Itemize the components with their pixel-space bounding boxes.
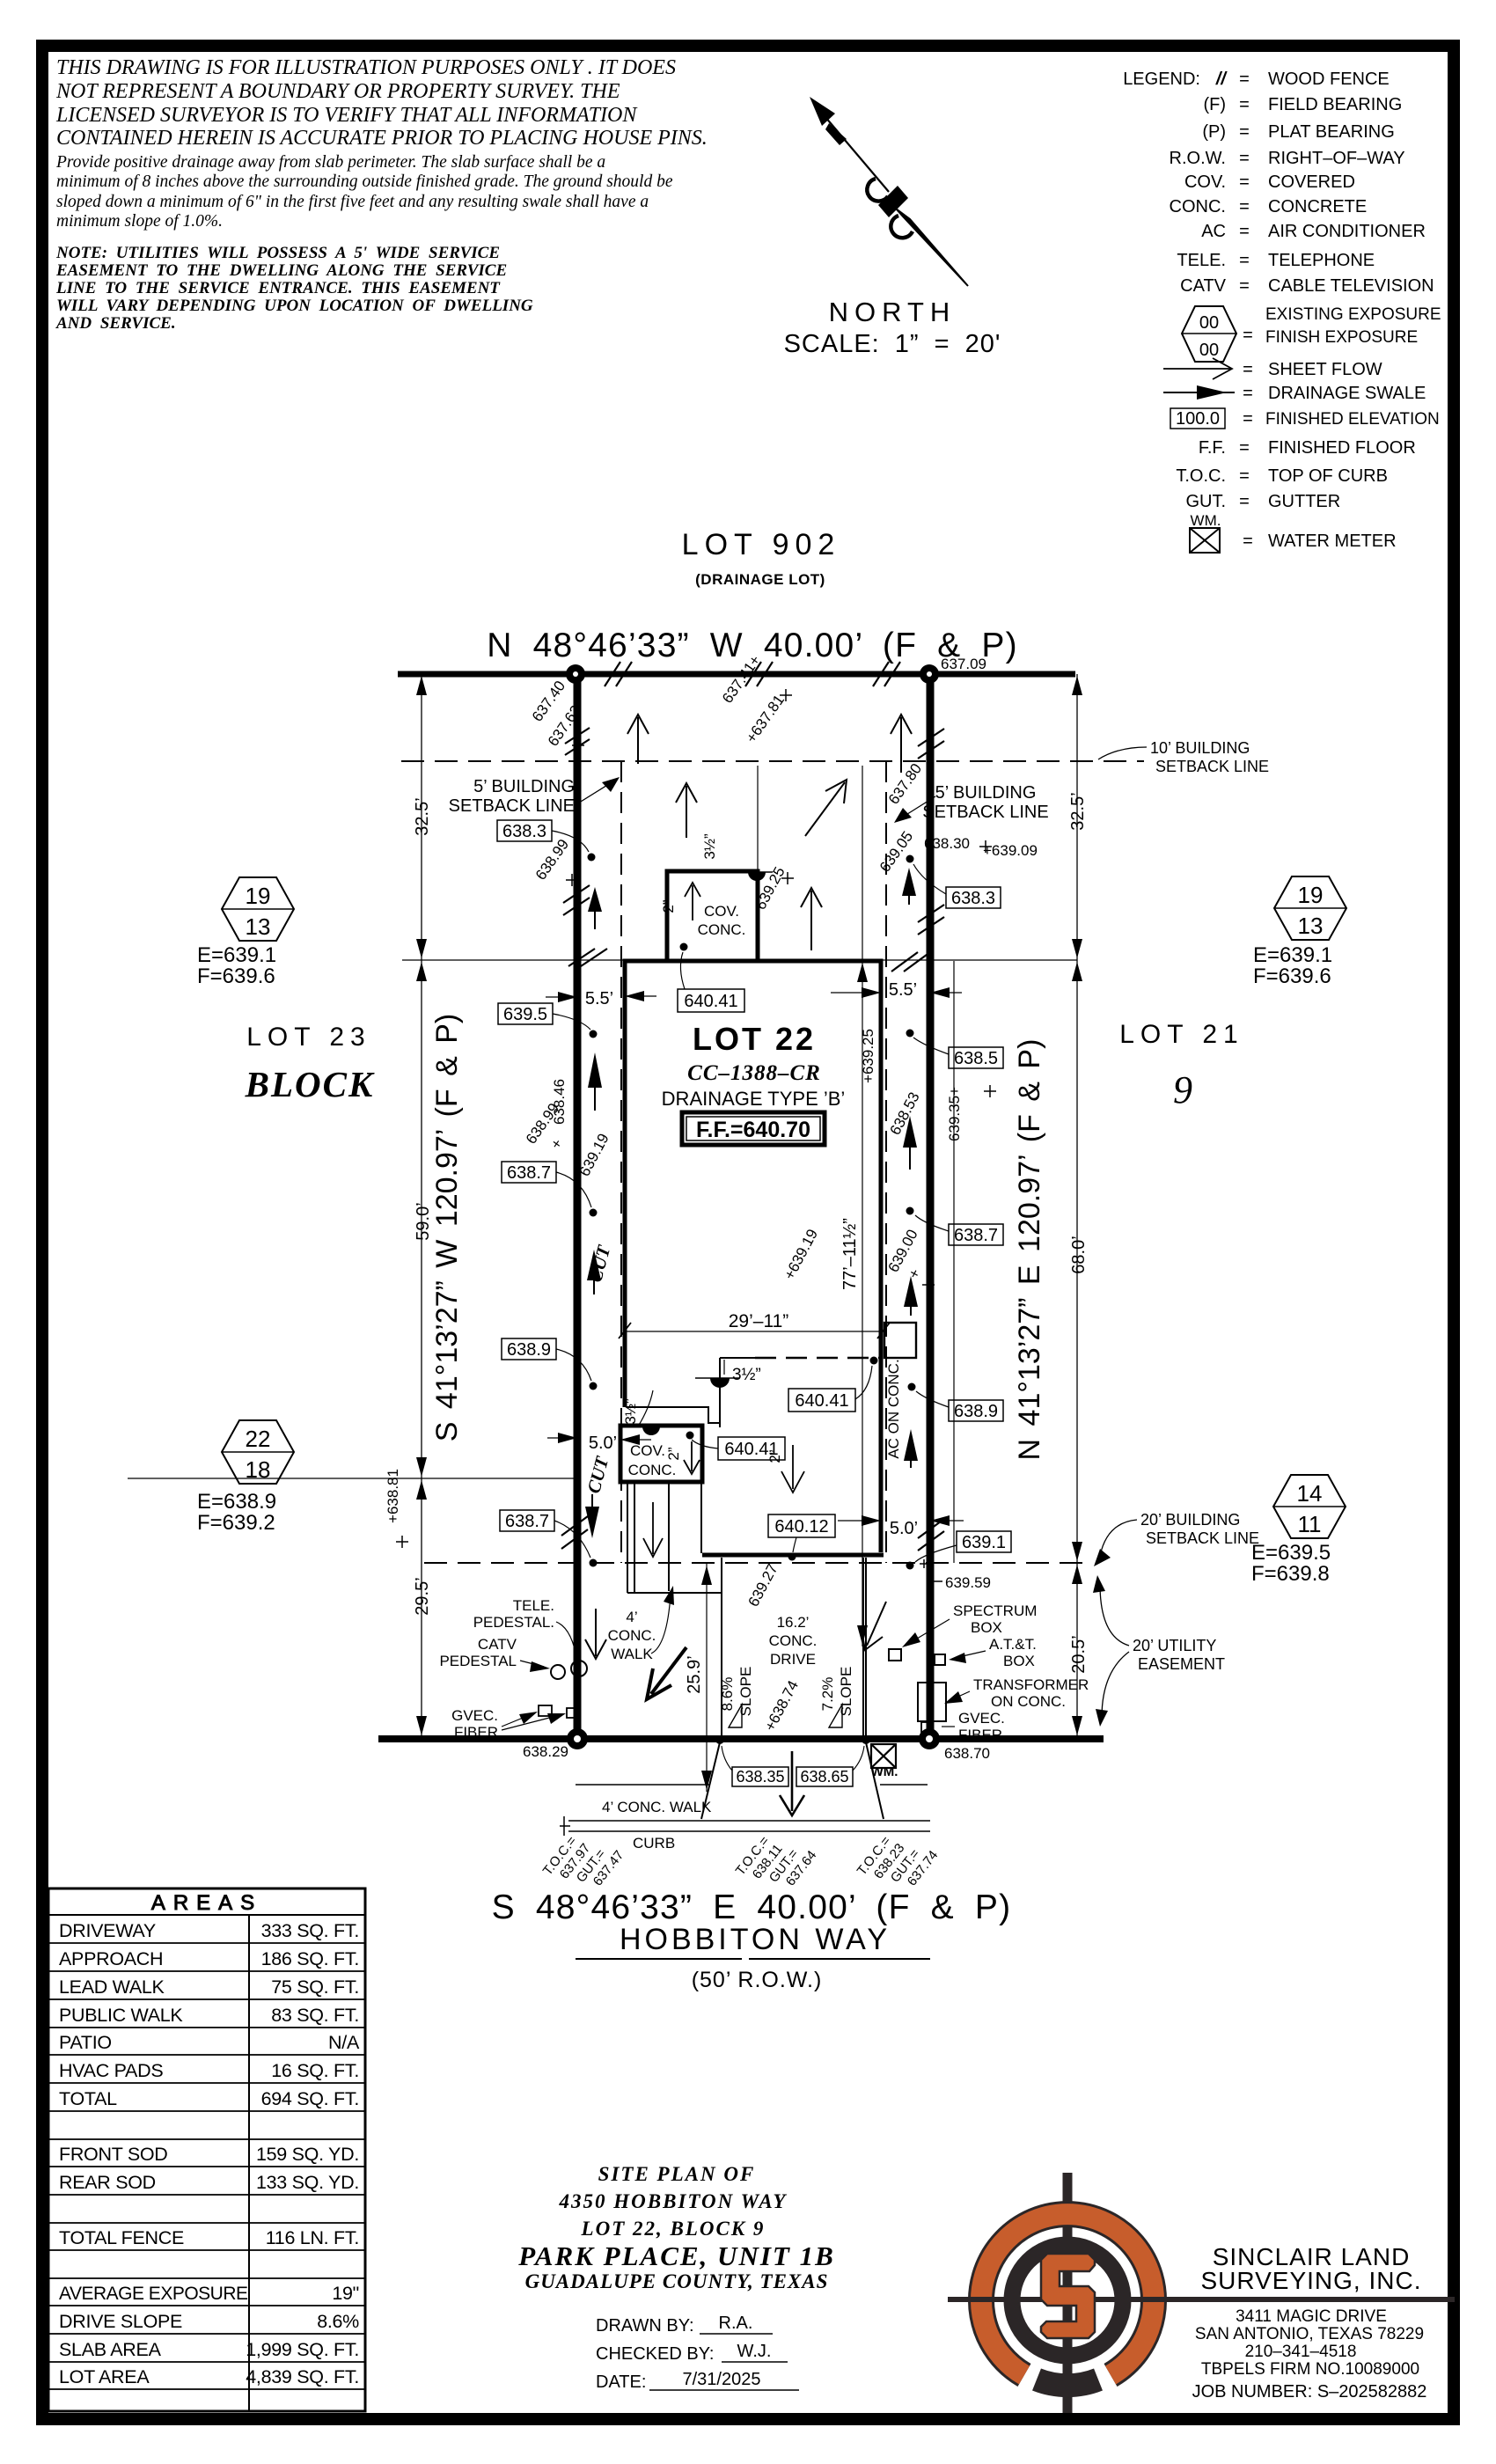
svg-text:25.9’: 25.9’ bbox=[685, 1655, 704, 1693]
svg-text:E=639.5: E=639.5 bbox=[1251, 1541, 1331, 1565]
svg-text:TELEPHONE: TELEPHONE bbox=[1268, 251, 1375, 270]
svg-text:DRAWN BY:: DRAWN BY: bbox=[596, 2316, 694, 2336]
svg-text:13: 13 bbox=[246, 913, 271, 940]
svg-text:5.5’: 5.5’ bbox=[585, 989, 613, 1008]
svg-text:PLAT BEARING: PLAT BEARING bbox=[1268, 122, 1395, 142]
svg-text:3411 MAGIC DRIVE: 3411 MAGIC DRIVE bbox=[1236, 2307, 1387, 2326]
svg-text:=: = bbox=[1239, 466, 1250, 486]
svg-text:E=639.1: E=639.1 bbox=[197, 943, 276, 967]
svg-text:LOT 22, BLOCK 9: LOT 22, BLOCK 9 bbox=[581, 2218, 766, 2240]
svg-text:HOBBITON WAY: HOBBITON WAY bbox=[620, 1923, 891, 1956]
svg-text:640.41: 640.41 bbox=[795, 1391, 848, 1411]
svg-text:638.7: 638.7 bbox=[954, 1226, 998, 1245]
svg-text:LOT AREA: LOT AREA bbox=[59, 2366, 150, 2387]
svg-text:638.3: 638.3 bbox=[951, 889, 995, 908]
svg-text:639.5: 639.5 bbox=[503, 1005, 547, 1024]
svg-text:SETBACK LINE: SETBACK LINE bbox=[1155, 758, 1269, 775]
svg-text:HVAC PADS: HVAC PADS bbox=[59, 2060, 163, 2081]
svg-text:S 48°46’33” E 40.00’ (F & P): S 48°46’33” E 40.00’ (F & P) bbox=[492, 1888, 1012, 1926]
svg-text:=: = bbox=[1239, 122, 1250, 142]
svg-text:+638.81: +638.81 bbox=[385, 1469, 401, 1523]
svg-text:639.1: 639.1 bbox=[962, 1533, 1006, 1552]
svg-text:CONTAINED HEREIN IS ACCURATE P: CONTAINED HEREIN IS ACCURATE PRIOR TO PL… bbox=[56, 127, 708, 150]
svg-text:2”: 2” bbox=[665, 1447, 682, 1460]
svg-text:AC: AC bbox=[1201, 222, 1226, 241]
svg-text:FRONT SOD: FRONT SOD bbox=[59, 2144, 168, 2165]
svg-text:638.70: 638.70 bbox=[944, 1745, 990, 1762]
svg-text:CC–1388–CR: CC–1388–CR bbox=[687, 1061, 821, 1085]
svg-text:DRIVEWAY: DRIVEWAY bbox=[59, 1920, 156, 1941]
svg-text:CATV: CATV bbox=[1180, 276, 1227, 296]
svg-text:DATE:: DATE: bbox=[596, 2372, 646, 2392]
svg-text:20.5’: 20.5’ bbox=[1069, 1635, 1089, 1673]
svg-text:7.2%: 7.2% bbox=[819, 1677, 836, 1712]
svg-text:GVEC.: GVEC. bbox=[958, 1710, 1005, 1727]
svg-text:CONC.: CONC. bbox=[1170, 197, 1226, 216]
svg-text:22: 22 bbox=[246, 1426, 271, 1452]
svg-text:=: = bbox=[1243, 326, 1253, 345]
svg-text:AC ON CONC.: AC ON CONC. bbox=[885, 1359, 902, 1458]
svg-text:638.46: 638.46 bbox=[551, 1079, 568, 1125]
svg-text:F=639.8: F=639.8 bbox=[1251, 1562, 1330, 1586]
svg-text:=: = bbox=[1239, 95, 1250, 114]
svg-text:WATER METER: WATER METER bbox=[1268, 532, 1397, 551]
svg-text:REAR SOD: REAR SOD bbox=[59, 2172, 156, 2193]
svg-text:PEDESTAL.: PEDESTAL. bbox=[473, 1614, 554, 1631]
svg-text:SLAB AREA: SLAB AREA bbox=[59, 2339, 162, 2360]
svg-text:=: = bbox=[1239, 197, 1250, 216]
svg-text:E=638.9: E=638.9 bbox=[197, 1490, 276, 1514]
svg-text:10’ BUILDING: 10’ BUILDING bbox=[1150, 739, 1250, 757]
svg-text:LOT 22: LOT 22 bbox=[693, 1021, 816, 1057]
svg-text:159 SQ. YD.: 159 SQ. YD. bbox=[256, 2144, 359, 2165]
svg-text:THIS DRAWING IS FOR ILLUSTRATI: THIS DRAWING IS FOR ILLUSTRATION PURPOSE… bbox=[56, 56, 676, 79]
svg-text:3½”: 3½” bbox=[701, 833, 718, 860]
svg-text:EASEMENT: EASEMENT bbox=[1138, 1655, 1225, 1673]
svg-text:=: = bbox=[1239, 172, 1250, 192]
svg-text:638.9: 638.9 bbox=[954, 1402, 998, 1421]
svg-text:4’ CONC. WALK: 4’ CONC. WALK bbox=[602, 1799, 712, 1815]
svg-text:638.30: 638.30 bbox=[924, 835, 970, 852]
svg-text:4350 HOBBITON WAY: 4350 HOBBITON WAY bbox=[559, 2190, 788, 2212]
svg-text:CURB: CURB bbox=[633, 1835, 675, 1852]
svg-text:COVERED: COVERED bbox=[1268, 172, 1355, 192]
svg-text:TOTAL: TOTAL bbox=[59, 2088, 117, 2109]
svg-text:SAN ANTONIO, TEXAS 78229: SAN ANTONIO, TEXAS 78229 bbox=[1195, 2325, 1424, 2343]
svg-text:N/A: N/A bbox=[328, 2032, 360, 2053]
svg-text:8.6%: 8.6% bbox=[719, 1677, 736, 1712]
svg-text:GUTTER: GUTTER bbox=[1268, 492, 1340, 511]
svg-text:3½”: 3½” bbox=[622, 1398, 639, 1425]
svg-text:TOP OF CURB: TOP OF CURB bbox=[1268, 466, 1388, 486]
svg-text:LICENSED SURVEYOR IS TO VERIFY: LICENSED SURVEYOR IS TO VERIFY THAT ALL … bbox=[55, 104, 638, 127]
svg-text:SPECTRUM: SPECTRUM bbox=[953, 1602, 1037, 1619]
svg-text:LEGEND:: LEGEND: bbox=[1123, 70, 1200, 89]
svg-text:WM.: WM. bbox=[1191, 512, 1221, 529]
svg-text:=: = bbox=[1243, 384, 1253, 403]
svg-text:sloped down a minimum of 6" in: sloped down a minimum of 6" in the first… bbox=[56, 193, 649, 211]
svg-text:AND SERVICE.: AND SERVICE. bbox=[55, 314, 176, 333]
svg-text:PEDESTAL: PEDESTAL bbox=[439, 1653, 517, 1669]
svg-text:16.2’: 16.2’ bbox=[777, 1614, 810, 1631]
svg-text:PARK PLACE, UNIT 1B: PARK PLACE, UNIT 1B bbox=[517, 2240, 835, 2271]
svg-text:COV.: COV. bbox=[704, 903, 739, 920]
svg-text:DRIVE SLOPE: DRIVE SLOPE bbox=[59, 2311, 182, 2332]
svg-text:640.41: 640.41 bbox=[684, 992, 737, 1011]
svg-text:TRANSFORMER: TRANSFORMER bbox=[973, 1676, 1089, 1693]
svg-text:APPROACH: APPROACH bbox=[59, 1948, 163, 1969]
svg-text:WILL VARY DEPENDING UPON LOCAT: WILL VARY DEPENDING UPON LOCATION OF DWE… bbox=[56, 297, 533, 315]
svg-text:11: 11 bbox=[1298, 1511, 1322, 1537]
svg-text:AVERAGE EXPOSURE: AVERAGE EXPOSURE bbox=[59, 2284, 248, 2304]
svg-text:638.35: 638.35 bbox=[736, 1768, 784, 1786]
svg-text:640.12: 640.12 bbox=[774, 1517, 828, 1536]
svg-text:DRIVE: DRIVE bbox=[770, 1651, 816, 1668]
svg-text:T.O.C.: T.O.C. bbox=[1176, 466, 1226, 486]
svg-text:(50’ R.O.W.): (50’ R.O.W.) bbox=[692, 1968, 823, 1992]
svg-text:4’: 4’ bbox=[626, 1609, 637, 1625]
svg-text:AREAS: AREAS bbox=[151, 1891, 262, 1915]
svg-text:GUT.: GUT. bbox=[1185, 492, 1226, 511]
svg-text:WM.: WM. bbox=[871, 1764, 898, 1779]
svg-text:CONCRETE: CONCRETE bbox=[1268, 197, 1367, 216]
svg-text:=: = bbox=[1243, 532, 1253, 551]
svg-text:7/31/2025: 7/31/2025 bbox=[683, 2370, 761, 2389]
svg-text:R.A.: R.A. bbox=[719, 2314, 753, 2333]
svg-text:133 SQ. YD.: 133 SQ. YD. bbox=[256, 2172, 359, 2193]
svg-text:00: 00 bbox=[1199, 341, 1219, 360]
svg-text:638.65: 638.65 bbox=[800, 1768, 848, 1786]
svg-text:19: 19 bbox=[1298, 882, 1324, 908]
svg-text:(DRAINAGE LOT): (DRAINAGE LOT) bbox=[695, 571, 825, 588]
svg-text:638.5: 638.5 bbox=[954, 1049, 998, 1068]
svg-text:F=639.6: F=639.6 bbox=[1253, 964, 1331, 988]
svg-text:116 LN. FT.: 116 LN. FT. bbox=[266, 2227, 359, 2248]
svg-text:4,839 SQ. FT.: 4,839 SQ. FT. bbox=[246, 2366, 359, 2387]
svg-text:=: = bbox=[1243, 409, 1253, 429]
svg-text:SURVEYING, INC.: SURVEYING, INC. bbox=[1201, 2267, 1422, 2294]
svg-text:CABLE TELEVISION: CABLE TELEVISION bbox=[1268, 276, 1434, 296]
svg-text:W.J.: W.J. bbox=[737, 2342, 772, 2361]
svg-text:COV.: COV. bbox=[1184, 172, 1226, 192]
svg-text:2”: 2” bbox=[766, 1449, 783, 1463]
svg-text:638.29: 638.29 bbox=[523, 1743, 568, 1760]
svg-text:13: 13 bbox=[1298, 913, 1324, 939]
svg-text:639.59: 639.59 bbox=[945, 1574, 991, 1591]
svg-text:BOX: BOX bbox=[971, 1619, 1002, 1636]
svg-text:TELE.: TELE. bbox=[513, 1597, 554, 1614]
svg-text:TBPELS FIRM NO.10089000: TBPELS FIRM NO.10089000 bbox=[1201, 2360, 1419, 2379]
svg-text:E=639.1: E=639.1 bbox=[1253, 943, 1332, 967]
svg-text:CATV: CATV bbox=[478, 1636, 517, 1653]
svg-text:NOTE: UTILITIES WILL POSSESS A: NOTE: UTILITIES WILL POSSESS A 5' WIDE S… bbox=[55, 244, 500, 262]
svg-text:BLOCK: BLOCK bbox=[245, 1064, 375, 1104]
svg-text:FINISHED ELEVATION: FINISHED ELEVATION bbox=[1265, 410, 1440, 429]
svg-text:F=639.2: F=639.2 bbox=[197, 1511, 275, 1535]
svg-text:FIBER: FIBER bbox=[958, 1727, 1002, 1743]
svg-text:(P): (P) bbox=[1202, 122, 1226, 142]
svg-text:SETBACK LINE: SETBACK LINE bbox=[1146, 1529, 1259, 1547]
svg-text:29’–11”: 29’–11” bbox=[729, 1311, 789, 1331]
svg-text:COV.: COV. bbox=[630, 1442, 665, 1459]
svg-text:S 41°13’27” W 120.97’ (F & P): S 41°13’27” W 120.97’ (F & P) bbox=[430, 1014, 464, 1441]
svg-text:20’ BUILDING: 20’ BUILDING bbox=[1140, 1511, 1240, 1529]
svg-text:637.09: 637.09 bbox=[941, 656, 986, 672]
svg-text:LINE TO THE SERVICE ENTRANCE.: LINE TO THE SERVICE ENTRANCE. THIS EASEM… bbox=[55, 279, 501, 297]
svg-text:LOT 21: LOT 21 bbox=[1119, 1020, 1244, 1049]
svg-text:BOX: BOX bbox=[1003, 1653, 1035, 1669]
svg-text:68.0’: 68.0’ bbox=[1069, 1236, 1089, 1273]
svg-text:5.0’: 5.0’ bbox=[890, 1519, 918, 1538]
svg-text:CONC.: CONC. bbox=[628, 1462, 677, 1478]
svg-text:638.3: 638.3 bbox=[502, 822, 546, 841]
svg-text:=: = bbox=[1239, 251, 1250, 270]
svg-text:FIBER: FIBER bbox=[454, 1724, 498, 1741]
svg-text:F.F.=640.70: F.F.=640.70 bbox=[696, 1118, 810, 1142]
svg-text:minimum slope of 1.0%.: minimum slope of 1.0%. bbox=[56, 212, 223, 231]
svg-text:2”: 2” bbox=[660, 899, 677, 913]
svg-text:18: 18 bbox=[246, 1456, 271, 1483]
svg-text:CONC.: CONC. bbox=[608, 1627, 656, 1644]
svg-text:GVEC.: GVEC. bbox=[451, 1707, 498, 1724]
svg-text:=: = bbox=[1243, 360, 1253, 379]
svg-text:EASEMENT TO THE DWELLING ALONG: EASEMENT TO THE DWELLING ALONG THE SERVI… bbox=[55, 261, 507, 280]
svg-text:29.5’: 29.5’ bbox=[413, 1577, 432, 1615]
svg-text:00: 00 bbox=[1199, 313, 1219, 333]
svg-text:TOTAL FENCE: TOTAL FENCE bbox=[59, 2227, 184, 2248]
svg-text:DRAINAGE TYPE ’B’: DRAINAGE TYPE ’B’ bbox=[662, 1088, 846, 1110]
svg-text:JOB NUMBER: S–202582882: JOB NUMBER: S–202582882 bbox=[1192, 2382, 1427, 2402]
svg-text:A.T.&T.: A.T.&T. bbox=[989, 1636, 1037, 1653]
svg-text:LOT 23: LOT 23 bbox=[246, 1023, 371, 1052]
svg-text:PATIO: PATIO bbox=[59, 2032, 112, 2053]
svg-text:FINISH EXPOSURE: FINISH EXPOSURE bbox=[1265, 328, 1418, 347]
svg-text:AIR CONDITIONER: AIR CONDITIONER bbox=[1268, 222, 1426, 241]
svg-text:5’ BUILDING: 5’ BUILDING bbox=[473, 777, 575, 796]
svg-text:=: = bbox=[1239, 276, 1250, 296]
svg-text:638.7: 638.7 bbox=[505, 1512, 549, 1531]
svg-text:R.O.W.: R.O.W. bbox=[1170, 149, 1226, 168]
svg-text:20’ UTILITY: 20’ UTILITY bbox=[1133, 1637, 1216, 1654]
svg-text:CHECKED BY:: CHECKED BY: bbox=[596, 2344, 714, 2364]
svg-text:638.9: 638.9 bbox=[507, 1340, 551, 1360]
svg-text:(F): (F) bbox=[1203, 95, 1226, 114]
svg-text:=: = bbox=[1239, 70, 1250, 89]
svg-text:+639.09: +639.09 bbox=[983, 842, 1038, 859]
svg-text:NOT REPRESENT A BOUNDARY OR PR: NOT REPRESENT A BOUNDARY OR PROPERTY SUR… bbox=[55, 80, 620, 103]
svg-text:SETBACK LINE: SETBACK LINE bbox=[449, 796, 575, 816]
svg-text:LEAD WALK: LEAD WALK bbox=[59, 1976, 165, 1998]
svg-text:=: = bbox=[1239, 222, 1250, 241]
svg-text:ON CONC.: ON CONC. bbox=[991, 1693, 1066, 1710]
svg-text:N 41°13’27” E 120.97’ (F & P): N 41°13’27” E 120.97’ (F & P) bbox=[1013, 1039, 1046, 1461]
svg-text:Provide positive drainage away: Provide positive drainage away from slab… bbox=[55, 153, 605, 172]
svg-text:100.0: 100.0 bbox=[1176, 409, 1220, 429]
svg-text:TELE.: TELE. bbox=[1177, 251, 1226, 270]
svg-text:=: = bbox=[1239, 149, 1250, 168]
svg-text:638.7: 638.7 bbox=[507, 1163, 551, 1183]
svg-text:SITE PLAN OF: SITE PLAN OF bbox=[598, 2163, 756, 2185]
svg-text:75 SQ. FT.: 75 SQ. FT. bbox=[271, 1976, 359, 1998]
svg-text:=: = bbox=[1239, 438, 1250, 458]
svg-text:19": 19" bbox=[332, 2283, 359, 2304]
svg-text:SCALE: 1” = 20': SCALE: 1” = 20' bbox=[784, 330, 1001, 358]
svg-text:=: = bbox=[1239, 492, 1250, 511]
svg-text:210–341–4518: 210–341–4518 bbox=[1245, 2343, 1357, 2361]
svg-text:9: 9 bbox=[1173, 1068, 1192, 1111]
svg-text:5.5’: 5.5’ bbox=[889, 980, 917, 1000]
svg-text:186 SQ. FT.: 186 SQ. FT. bbox=[261, 1948, 359, 1969]
svg-text:F.F.: F.F. bbox=[1199, 438, 1226, 458]
svg-text:FINISHED FLOOR: FINISHED FLOOR bbox=[1268, 438, 1416, 458]
svg-text:SHEET FLOW: SHEET FLOW bbox=[1268, 360, 1382, 379]
svg-text:F=639.6: F=639.6 bbox=[197, 964, 275, 988]
svg-text:3½”: 3½” bbox=[732, 1366, 761, 1384]
svg-text:694 SQ. FT.: 694 SQ. FT. bbox=[261, 2088, 359, 2109]
svg-text:32.5’: 32.5’ bbox=[1068, 792, 1088, 830]
svg-text:PUBLIC WALK: PUBLIC WALK bbox=[59, 2005, 183, 2026]
svg-text:8.6%: 8.6% bbox=[317, 2311, 359, 2332]
svg-text:19: 19 bbox=[246, 883, 271, 909]
svg-text:CONC.: CONC. bbox=[769, 1632, 818, 1649]
svg-text:16 SQ. FT.: 16 SQ. FT. bbox=[271, 2060, 359, 2081]
svg-text:5’ BUILDING: 5’ BUILDING bbox=[935, 783, 1037, 803]
svg-text:1,999 SQ. FT.: 1,999 SQ. FT. bbox=[246, 2339, 359, 2360]
svg-text:FIELD BEARING: FIELD BEARING bbox=[1268, 95, 1402, 114]
svg-text:NORTH: NORTH bbox=[829, 297, 957, 327]
svg-text:LOT 902: LOT 902 bbox=[682, 528, 841, 561]
svg-text:GUADALUPE COUNTY, TEXAS: GUADALUPE COUNTY, TEXAS bbox=[525, 2270, 829, 2292]
svg-text:minimum of 8 inches above the: minimum of 8 inches above the surroundin… bbox=[56, 172, 673, 191]
svg-text:SETBACK LINE: SETBACK LINE bbox=[922, 803, 1048, 822]
svg-text:+639.25: +639.25 bbox=[860, 1029, 876, 1083]
svg-text:WALK: WALK bbox=[611, 1646, 653, 1662]
svg-text:RIGHT–OF–WAY: RIGHT–OF–WAY bbox=[1268, 149, 1405, 168]
svg-text:DRAINAGE SWALE: DRAINAGE SWALE bbox=[1268, 384, 1426, 403]
svg-text:WOOD FENCE: WOOD FENCE bbox=[1268, 70, 1390, 89]
svg-text:639.35+: 639.35+ bbox=[946, 1087, 963, 1141]
svg-text:32.5’: 32.5’ bbox=[413, 797, 432, 835]
svg-text:83 SQ. FT.: 83 SQ. FT. bbox=[271, 2005, 359, 2026]
svg-text:77’–11½”: 77’–11½” bbox=[840, 1218, 860, 1290]
svg-text:14: 14 bbox=[1297, 1480, 1323, 1507]
svg-text:333 SQ. FT.: 333 SQ. FT. bbox=[261, 1920, 359, 1941]
svg-text:5.0’: 5.0’ bbox=[589, 1434, 617, 1453]
svg-text:EXISTING EXPOSURE: EXISTING EXPOSURE bbox=[1265, 305, 1441, 324]
svg-text:CONC.: CONC. bbox=[698, 921, 746, 938]
